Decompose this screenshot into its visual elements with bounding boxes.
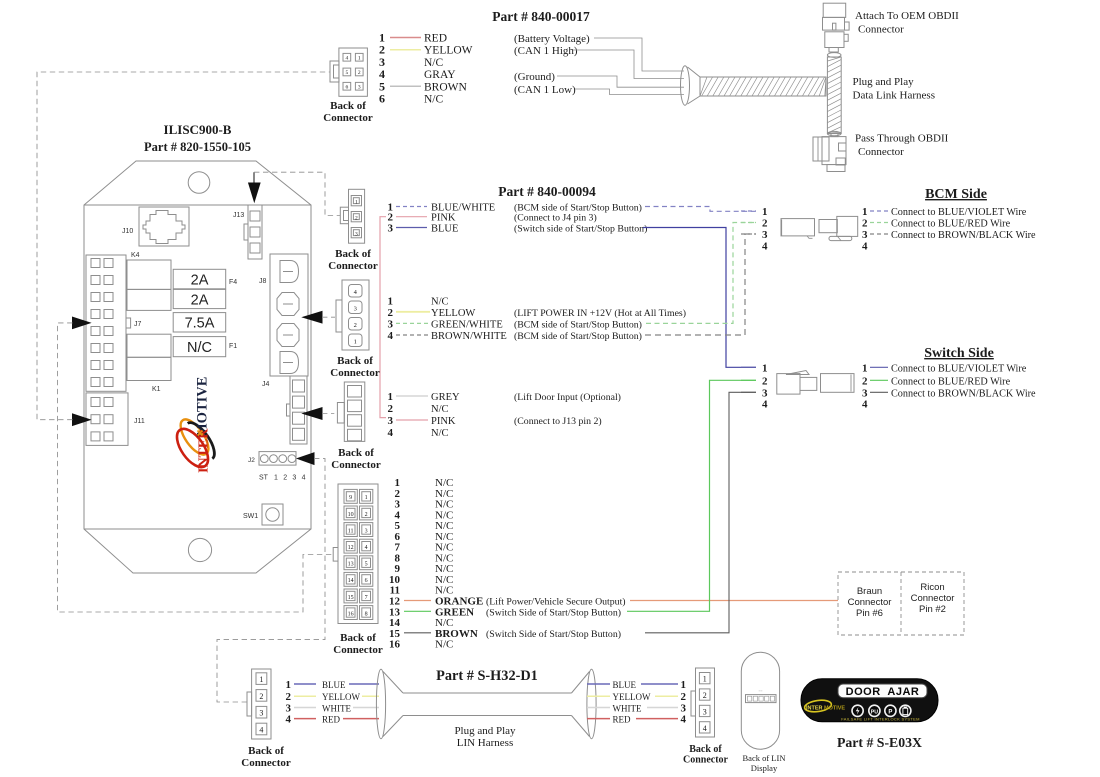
svg-text:4: 4 [703, 724, 707, 733]
svg-text:Connect to BLUE/RED Wire: Connect to BLUE/RED Wire [891, 219, 1011, 230]
svg-text:4: 4 [365, 545, 368, 551]
svg-text:GREY: GREY [431, 392, 460, 403]
svg-text:(Lift Power/Vehicle Secure Out: (Lift Power/Vehicle Secure Output) [486, 597, 626, 608]
svg-text:1: 1 [274, 475, 278, 482]
svg-text:DOOR AJAR: DOOR AJAR [846, 686, 920, 698]
svg-text:4: 4 [302, 475, 306, 482]
svg-text:Data Link Harness: Data Link Harness [853, 90, 935, 102]
svg-text:2: 2 [762, 375, 768, 387]
svg-text:8: 8 [365, 611, 368, 617]
svg-text:2: 2 [681, 691, 687, 703]
svg-text:1: 1 [862, 362, 868, 374]
svg-text:Back of: Back of [330, 100, 366, 112]
svg-text:Connector: Connector [858, 24, 904, 36]
svg-text:3: 3 [762, 387, 768, 399]
svg-text:Back of: Back of [338, 447, 374, 459]
svg-text:(CAN 1 Low): (CAN 1 Low) [514, 84, 576, 96]
svg-text:Braun: Braun [857, 586, 882, 597]
svg-text:1: 1 [365, 495, 368, 501]
svg-text:Switch Side: Switch Side [924, 346, 994, 361]
svg-text:Connector: Connector [330, 367, 380, 379]
svg-text:ST: ST [259, 475, 269, 482]
svg-text:3: 3 [354, 306, 357, 313]
svg-text:Back of: Back of [689, 744, 722, 755]
svg-text:(Switch Side of Start/Stop But: (Switch Side of Start/Stop Button) [486, 629, 621, 640]
svg-text:INTER: INTER [806, 706, 823, 712]
svg-text:1: 1 [681, 679, 687, 691]
svg-text:Plug and Play: Plug and Play [454, 725, 516, 737]
svg-text:(BCM side of Start/Stop Button: (BCM side of Start/Stop Button) [514, 319, 642, 330]
svg-text:N/C: N/C [435, 639, 453, 651]
svg-text:J2: J2 [248, 457, 255, 464]
svg-text:1: 1 [286, 679, 292, 691]
svg-text:SW1: SW1 [243, 513, 258, 520]
svg-text:2: 2 [355, 216, 358, 222]
svg-text:10: 10 [348, 512, 354, 518]
svg-text:16: 16 [348, 611, 354, 617]
svg-text:12: 12 [348, 545, 354, 551]
svg-text:3: 3 [862, 387, 868, 399]
svg-text:Part # S-E03X: Part # S-E03X [837, 735, 922, 750]
svg-text:(Lift Door Input (Optional): (Lift Door Input (Optional) [514, 392, 621, 403]
svg-text:(BCM side of Start/Stop Button: (BCM side of Start/Stop Button) [514, 331, 642, 342]
svg-text:16: 16 [389, 639, 401, 651]
svg-text:N/C: N/C [424, 57, 444, 69]
svg-text:P: P [888, 710, 892, 716]
svg-text:4: 4 [259, 726, 263, 735]
svg-text:Connector: Connector [911, 593, 955, 604]
svg-text:6: 6 [379, 92, 385, 106]
svg-text:RED: RED [424, 33, 447, 45]
svg-text:2: 2 [862, 375, 868, 387]
svg-text:N/C: N/C [431, 428, 449, 439]
svg-text:11: 11 [348, 528, 354, 534]
svg-text:Connector: Connector [241, 757, 291, 769]
svg-text:N/C: N/C [187, 340, 212, 356]
svg-text:3: 3 [388, 415, 394, 427]
svg-text:2: 2 [286, 691, 292, 703]
svg-text:GRAY: GRAY [424, 69, 456, 81]
svg-text:Ricon: Ricon [920, 582, 944, 593]
svg-text:BCM Side: BCM Side [925, 187, 987, 202]
svg-text:1: 1 [862, 206, 868, 218]
svg-text:WHITE: WHITE [322, 703, 351, 713]
svg-text:3: 3 [365, 528, 368, 534]
svg-text:7: 7 [365, 595, 368, 601]
svg-text:Back of: Back of [340, 632, 376, 644]
svg-text:4: 4 [762, 241, 768, 253]
svg-text:4: 4 [862, 241, 868, 253]
svg-text:Back of: Back of [248, 745, 284, 757]
svg-text:(Switch Side of Start/Stop But: (Switch Side of Start/Stop Button) [486, 607, 621, 618]
svg-text:5: 5 [365, 562, 368, 568]
svg-text:YELLOW: YELLOW [322, 692, 360, 702]
svg-text:1: 1 [354, 339, 357, 346]
svg-text:(Battery Voltage): (Battery Voltage) [514, 33, 590, 45]
svg-text:2: 2 [283, 475, 287, 482]
svg-text:6: 6 [365, 578, 368, 584]
svg-text:Plug and Play: Plug and Play [853, 76, 915, 88]
svg-text:Display: Display [751, 763, 778, 773]
svg-text:3: 3 [259, 709, 263, 718]
svg-text:N/C: N/C [431, 296, 449, 307]
svg-text:Back of LIN: Back of LIN [743, 753, 786, 763]
svg-text:13: 13 [348, 562, 354, 568]
svg-text:2: 2 [259, 692, 263, 701]
svg-text:BLUE: BLUE [613, 680, 637, 690]
svg-text:1: 1 [703, 675, 707, 684]
svg-text:J10: J10 [122, 228, 133, 235]
svg-text:YELLOW: YELLOW [431, 308, 475, 319]
svg-text:RED: RED [613, 714, 632, 724]
svg-text:J7: J7 [134, 321, 142, 328]
svg-text:4: 4 [346, 56, 349, 62]
svg-text:15: 15 [348, 595, 354, 601]
svg-text:LIN Harness: LIN Harness [457, 737, 514, 749]
svg-text:Connector: Connector [331, 459, 381, 471]
svg-text:4: 4 [762, 399, 768, 411]
svg-text:4: 4 [388, 427, 394, 439]
svg-text:Part # 820-1550-105: Part # 820-1550-105 [144, 140, 251, 154]
svg-text:1: 1 [259, 675, 263, 684]
svg-text:1: 1 [762, 362, 768, 374]
svg-text:2: 2 [388, 403, 394, 415]
svg-text:N/C: N/C [431, 404, 449, 415]
svg-text:Part # 840-00017: Part # 840-00017 [492, 9, 590, 24]
svg-text:4: 4 [862, 399, 868, 411]
svg-text:(LIFT POWER IN +12V (Hot at Al: (LIFT POWER IN +12V (Hot at All Times) [514, 308, 686, 319]
svg-text:N/C: N/C [424, 94, 444, 106]
svg-text:Pin #2: Pin #2 [919, 604, 946, 615]
svg-text:F4: F4 [229, 279, 237, 286]
svg-text:YELLOW: YELLOW [424, 45, 473, 57]
svg-text:GREEN/WHITE: GREEN/WHITE [431, 319, 503, 330]
svg-text:Attach To OEM OBDII: Attach To OEM OBDII [855, 10, 959, 22]
svg-text:(Switch side of Start/Stop But: (Switch side of Start/Stop Button) [514, 224, 647, 235]
svg-text:J8: J8 [259, 278, 267, 285]
svg-text:MOTIVE: MOTIVE [824, 706, 845, 712]
svg-text:BROWN: BROWN [424, 81, 468, 93]
svg-text:BLUE: BLUE [431, 224, 458, 235]
svg-text:Back of: Back of [337, 355, 373, 367]
svg-text:1: 1 [355, 200, 358, 206]
svg-text:14: 14 [348, 578, 354, 584]
svg-text:6: 6 [346, 85, 349, 91]
svg-text:ILISC900-B: ILISC900-B [164, 122, 232, 137]
svg-text:(Connect to J13 pin 2): (Connect to J13 pin 2) [514, 416, 602, 427]
svg-text:3: 3 [388, 318, 394, 330]
svg-text:Connector: Connector [683, 755, 729, 766]
svg-text:K4: K4 [131, 252, 140, 259]
svg-text:7.5A: 7.5A [185, 316, 215, 332]
svg-text:J11: J11 [134, 418, 145, 425]
svg-text:4: 4 [286, 713, 292, 725]
svg-text:2: 2 [354, 322, 357, 329]
svg-text:2A: 2A [191, 293, 209, 309]
svg-text:1: 1 [358, 56, 361, 62]
svg-text:Pass Through OBDII: Pass Through OBDII [855, 133, 949, 145]
svg-text:4: 4 [388, 330, 394, 342]
svg-text:Connect to BLUE/RED Wire: Connect to BLUE/RED Wire [891, 376, 1011, 387]
svg-text:(CAN 1 High): (CAN 1 High) [514, 45, 578, 57]
svg-text:3: 3 [388, 223, 394, 235]
svg-text:PINK: PINK [431, 416, 456, 427]
svg-text:2: 2 [365, 512, 368, 518]
svg-text:YELLOW: YELLOW [613, 692, 651, 702]
svg-text:Pin #6: Pin #6 [856, 608, 883, 619]
svg-text:PU: PU [871, 709, 878, 715]
svg-text:Connect to BROWN/BLACK Wire: Connect to BROWN/BLACK Wire [891, 230, 1036, 241]
svg-text:2: 2 [388, 307, 394, 319]
svg-text:J13: J13 [233, 212, 244, 219]
svg-text:Connector: Connector [323, 112, 373, 124]
svg-text:2: 2 [762, 218, 768, 230]
svg-text:4: 4 [681, 713, 687, 725]
svg-text:MOTIVE: MOTIVE [195, 377, 211, 437]
svg-text:2: 2 [358, 70, 361, 76]
svg-text:K1: K1 [152, 386, 161, 393]
svg-text:FAILSAFE LIFT INTERLOCK SYSTEM: FAILSAFE LIFT INTERLOCK SYSTEM [841, 717, 920, 722]
svg-text:2: 2 [703, 691, 707, 700]
svg-text:Connector: Connector [333, 644, 383, 656]
svg-text:Part # S-H32-D1: Part # S-H32-D1 [436, 668, 538, 684]
svg-text:3: 3 [355, 232, 358, 238]
svg-text:Connector: Connector [328, 260, 378, 272]
svg-text:Connect to BLUE/VIOLET Wire: Connect to BLUE/VIOLET Wire [891, 363, 1027, 374]
svg-text:BLUE: BLUE [322, 680, 346, 690]
svg-text:WHITE: WHITE [613, 703, 642, 713]
svg-text:Connector: Connector [858, 146, 904, 158]
svg-text:Connect to BLUE/VIOLET Wire: Connect to BLUE/VIOLET Wire [891, 207, 1027, 218]
svg-text:''''': ''''' [759, 689, 763, 694]
svg-text:(Connect to J4 pin 3): (Connect to J4 pin 3) [514, 213, 597, 224]
svg-text:Back of: Back of [335, 248, 371, 260]
svg-text:2: 2 [862, 218, 868, 230]
svg-text:1: 1 [388, 295, 394, 307]
svg-text:2A: 2A [191, 273, 209, 289]
svg-text:Connector: Connector [848, 597, 892, 608]
svg-text:Connect to BROWN/BLACK Wire: Connect to BROWN/BLACK Wire [891, 388, 1036, 399]
svg-text:3: 3 [862, 229, 868, 241]
svg-text:3: 3 [358, 85, 361, 91]
svg-text:1: 1 [762, 206, 768, 218]
svg-text:BROWN/WHITE: BROWN/WHITE [431, 331, 507, 342]
svg-text:3: 3 [292, 475, 296, 482]
svg-text:9: 9 [349, 495, 352, 501]
svg-text:Part # 840-00094: Part # 840-00094 [498, 184, 596, 199]
svg-text:(Ground): (Ground) [514, 71, 555, 83]
svg-text:5: 5 [346, 70, 349, 76]
svg-text:1: 1 [388, 391, 394, 403]
svg-text:J4: J4 [262, 381, 270, 388]
svg-text:3: 3 [762, 229, 768, 241]
svg-text:PINK: PINK [431, 213, 456, 224]
svg-text:RED: RED [322, 714, 341, 724]
svg-text:F1: F1 [229, 343, 237, 350]
svg-text:3: 3 [703, 707, 707, 716]
